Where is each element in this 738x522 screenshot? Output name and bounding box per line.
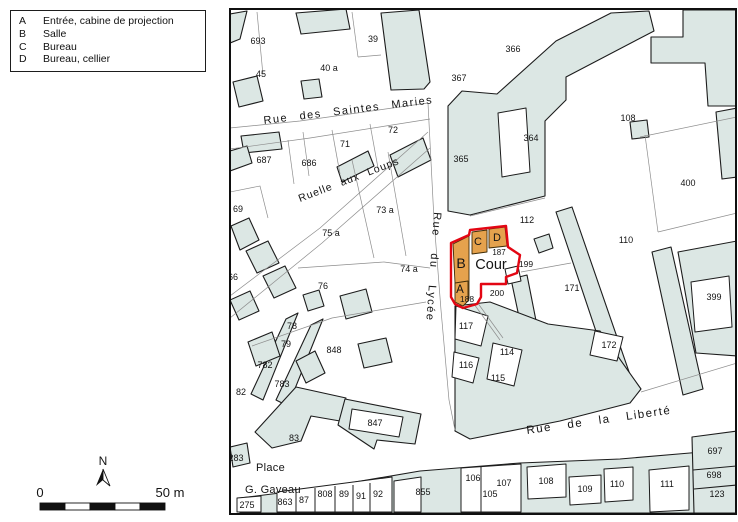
legend-label-a: Entrée, cabine de projection <box>43 15 197 28</box>
parcel-label-687: 687 <box>256 155 271 165</box>
room-label-cour: Cour <box>475 257 507 273</box>
legend-label-d: Bureau, cellier <box>43 53 197 66</box>
parcel-label-116: 116 <box>459 360 473 370</box>
parcel-label-693: 693 <box>250 36 265 46</box>
map-canvas: Rue des Saintes MariesRuelle aux LoupsRu… <box>231 10 735 513</box>
parcel-label-72: 72 <box>388 125 398 135</box>
parcel-label-111: 111 <box>660 479 674 489</box>
room-label-b: B <box>456 255 465 271</box>
parcel-label-106: 106 <box>465 473 480 483</box>
legend-row: CBureau <box>19 41 197 54</box>
parcel-label-82: 82 <box>236 387 246 397</box>
parcel-label-697: 697 <box>707 446 722 456</box>
parcel-label-108: 108 <box>538 476 553 486</box>
room-label-a: A <box>456 284 464 296</box>
parcel-label-698: 698 <box>706 470 721 480</box>
legend-key-d: D <box>19 53 43 66</box>
parcel-label-366: 366 <box>505 44 520 54</box>
parcel-label-848: 848 <box>326 345 341 355</box>
parcel-label-114: 114 <box>500 347 514 357</box>
parcel-label-73-a: 73 a <box>376 205 394 215</box>
parcel-label-66: 66 <box>231 272 238 282</box>
parcel-label-83: 83 <box>289 433 299 443</box>
parcel-label-91: 91 <box>356 491 366 501</box>
parcel-label-686: 686 <box>301 158 316 168</box>
parcel-label-78: 78 <box>287 321 297 331</box>
scale-segment <box>115 503 140 510</box>
legend-row: AEntrée, cabine de projection <box>19 15 197 28</box>
parcel-label-108: 108 <box>620 113 635 123</box>
parcel-label-117: 117 <box>459 321 473 331</box>
figure: AEntrée, cabine de projection BSalle CBu… <box>0 0 738 522</box>
parcel-label-283: 283 <box>231 453 244 463</box>
parcel-label-847: 847 <box>367 418 382 428</box>
parcel-label-367: 367 <box>451 73 466 83</box>
parcel-label-275: 275 <box>239 500 254 510</box>
parcel-label-110: 110 <box>610 479 624 489</box>
legend-row: BSalle <box>19 28 197 41</box>
scale-start-label: 0 <box>36 485 43 500</box>
legend-row: DBureau, cellier <box>19 53 197 66</box>
north-label: N <box>99 454 108 468</box>
legend-label-c: Bureau <box>43 41 197 54</box>
parcel-label-782: 782 <box>257 360 272 370</box>
parcel-label-87: 87 <box>299 495 309 505</box>
map-frame: Rue des Saintes MariesRuelle aux LoupsRu… <box>229 8 737 515</box>
parcel-label-92: 92 <box>373 489 383 499</box>
parcel-label-808: 808 <box>317 489 332 499</box>
legend-key-c: C <box>19 41 43 54</box>
legend-key-a: A <box>19 15 43 28</box>
street-label-rue-du-lyc-e: Rue du Lycée <box>423 212 443 322</box>
scale-segment <box>90 503 115 510</box>
parcel-label-783: 783 <box>274 379 289 389</box>
parcel-label-75-a: 75 a <box>322 228 340 238</box>
room-label-c: C <box>474 236 482 248</box>
parcel-label-123: 123 <box>709 489 724 499</box>
parcel-label-399: 399 <box>706 292 721 302</box>
parcel-label-76: 76 <box>318 281 328 291</box>
scale-end-label: 50 m <box>156 485 185 500</box>
parcel-label-69: 69 <box>233 204 243 214</box>
legend-box: AEntrée, cabine de projection BSalle CBu… <box>10 10 206 72</box>
parcel-label-71: 71 <box>340 139 350 149</box>
street-label-g-gaveau: G. Gaveau <box>245 484 301 496</box>
parcel-label-187: 187 <box>492 248 506 257</box>
parcel-label-109: 109 <box>577 484 592 494</box>
parcel-label-110: 110 <box>619 235 633 245</box>
parcel-label-45: 45 <box>256 69 266 79</box>
parcel-label-112: 112 <box>520 215 534 225</box>
scale-bar: 0 50 m <box>30 483 205 517</box>
parcel-label-172: 172 <box>601 340 616 350</box>
street-label-rue-des-saintes-maries: Rue des Saintes Maries <box>263 94 434 127</box>
room-label-d: D <box>493 232 501 244</box>
parcel-label-105: 105 <box>482 489 497 499</box>
scale-segment <box>65 503 90 510</box>
scale-segment <box>40 503 65 510</box>
scale-segment <box>140 503 165 510</box>
parcel-label-107: 107 <box>496 478 511 488</box>
parcel-label-855: 855 <box>415 487 430 497</box>
parcel-label-89: 89 <box>339 489 349 499</box>
parcel-label-39: 39 <box>368 34 378 44</box>
street-label-place: Place <box>256 462 285 474</box>
parcel-label-364: 364 <box>523 133 538 143</box>
parcel-label-199: 199 <box>519 259 533 269</box>
parcel-label-200: 200 <box>490 288 504 298</box>
legend-key-b: B <box>19 28 43 41</box>
parcel-label-115: 115 <box>491 373 505 383</box>
parcel-label-863: 863 <box>277 497 292 507</box>
parcel-label-79: 79 <box>281 339 291 349</box>
parcel-label-400: 400 <box>680 178 695 188</box>
parcel-label-40-a: 40 a <box>320 63 338 73</box>
legend-label-b: Salle <box>43 28 197 41</box>
parcel-label-365: 365 <box>453 154 468 164</box>
parcel-label-74-a: 74 a <box>400 264 418 274</box>
parcel-label-171: 171 <box>564 283 579 293</box>
